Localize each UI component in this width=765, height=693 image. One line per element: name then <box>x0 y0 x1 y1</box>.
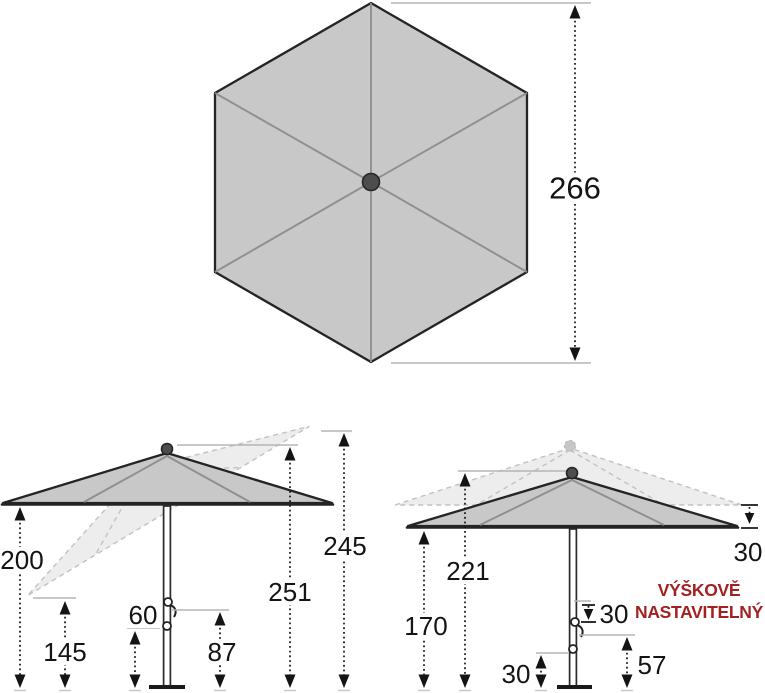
dim-label-right-crank-height: 57 <box>635 652 670 678</box>
left-lower-hub <box>163 622 171 630</box>
dim-label-right-slider-travel: 30 <box>597 601 632 627</box>
dim-label-right-edge-lift: 30 <box>731 539 765 565</box>
top-view-hexagon <box>215 3 591 363</box>
height-adjustable-note: VÝŠKOVĚ NASTAVITELNÝ <box>630 579 765 623</box>
right-ghost-finial <box>565 441 576 452</box>
dim-label-left-edge-height: 200 <box>0 547 47 573</box>
left-finial <box>162 444 173 455</box>
dim-label-diameter: 266 <box>546 173 604 204</box>
left-pole <box>164 506 171 687</box>
diagram-canvas: 266 200 145 60 87 251 245 170 221 30 30 … <box>0 0 765 693</box>
dim-label-right-lower-hub-height: 30 <box>499 661 534 687</box>
right-lower-hub <box>569 645 577 653</box>
dim-label-right-top-height: 221 <box>443 558 492 584</box>
dim-label-left-pole-top-height: 251 <box>265 579 314 605</box>
dim-label-left-upper-hub-height: 87 <box>205 639 240 665</box>
right-pole <box>570 529 577 687</box>
height-adjustable-note-line2: NASTAVITELNÝ <box>630 601 765 623</box>
dim-label-left-tilted-top-height: 245 <box>320 533 369 559</box>
dim-label-right-edge-height: 170 <box>401 613 450 639</box>
hexagon-hub <box>363 174 380 191</box>
left-canopy <box>3 453 332 503</box>
right-finial <box>567 468 578 479</box>
dim-label-left-tilted-edge-height: 145 <box>40 639 89 665</box>
height-adjustable-note-line1: VÝŠKOVĚ <box>630 579 765 601</box>
dim-label-left-lower-hub-height: 60 <box>126 602 161 628</box>
